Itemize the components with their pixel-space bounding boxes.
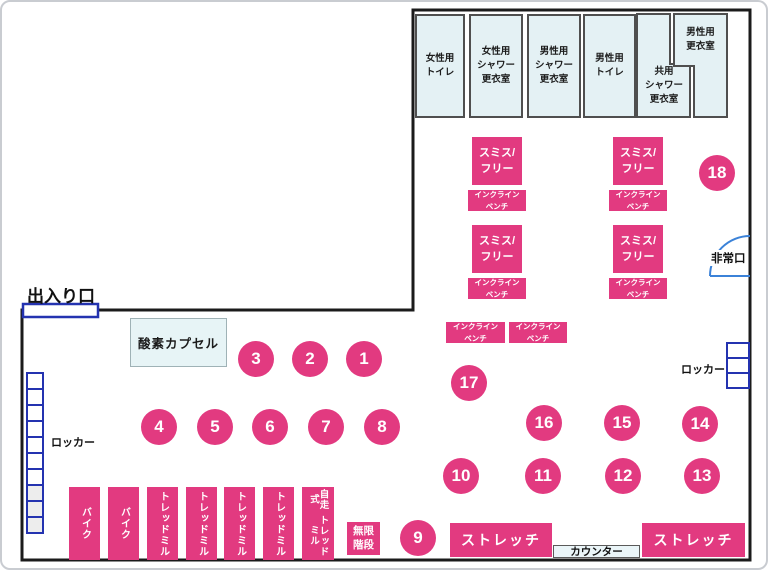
- room-mens-toilet: 男性用 トイレ: [583, 14, 636, 118]
- station-14: 14: [682, 406, 718, 442]
- oxygen-capsule-room: 酸素カプセル: [130, 318, 227, 367]
- station-10: 10: [443, 458, 479, 494]
- counter: カウンター: [553, 545, 640, 558]
- bike-1: バイク: [69, 487, 100, 560]
- locker-label-left: ロッカー: [51, 434, 95, 450]
- smith-free-machine-1: スミス/ フリー: [472, 137, 522, 185]
- room-shared-shower-changing-label: 共用 シャワー 更衣室: [636, 60, 692, 112]
- incline-bench-2: インクライン ベンチ: [609, 190, 667, 211]
- room-mens-changing-label: 男性用 更衣室: [674, 18, 727, 62]
- smith-free-machine-3: スミス/ フリー: [472, 225, 522, 273]
- station-18: 18: [699, 155, 735, 191]
- treadmill-4: トレッドミル: [263, 487, 294, 560]
- station-4: 4: [141, 409, 177, 445]
- locker-label-right: ロッカー: [681, 361, 725, 377]
- infinite-stairs: 無限 階段: [347, 522, 380, 555]
- incline-bench-3: インクライン ベンチ: [468, 278, 526, 299]
- self-propelled-treadmill: 自走式 トレッドミル: [302, 487, 334, 560]
- locker-cell: [26, 516, 44, 534]
- station-16: 16: [526, 405, 562, 441]
- station-7: 7: [308, 409, 344, 445]
- entrance-label: 出入り口: [27, 282, 95, 307]
- emergency-exit-label: 非常口: [710, 250, 747, 266]
- locker-cell: [726, 372, 750, 389]
- room-mens-shower-changing: 男性用 シャワー 更衣室: [527, 14, 581, 118]
- station-15: 15: [604, 405, 640, 441]
- station-1: 1: [346, 341, 382, 377]
- gym-floor-plan: 女性用 トイレ 女性用 シャワー 更衣室 男性用 シャワー 更衣室 男性用 トイ…: [0, 0, 768, 570]
- station-2: 2: [292, 341, 328, 377]
- bike-2: バイク: [108, 487, 139, 560]
- station-11: 11: [525, 458, 561, 494]
- treadmill-3: トレッドミル: [224, 487, 255, 560]
- locker-bank-right: [726, 342, 750, 389]
- station-5: 5: [197, 409, 233, 445]
- locker-bank-left: [26, 372, 44, 534]
- incline-bench-1: インクライン ベンチ: [468, 190, 526, 211]
- smith-free-machine-4: スミス/ フリー: [613, 225, 663, 273]
- stretch-area-right: ストレッチ: [642, 523, 745, 557]
- station-13: 13: [684, 458, 720, 494]
- station-17: 17: [451, 365, 487, 401]
- treadmill-2: トレッドミル: [186, 487, 217, 560]
- room-womens-toilet: 女性用 トイレ: [415, 14, 465, 118]
- self-propelled-treadmill-line2: トレッドミル: [309, 511, 328, 560]
- treadmill-1: トレッドミル: [147, 487, 178, 560]
- incline-bench-6: インクライン ベンチ: [509, 322, 567, 343]
- station-12: 12: [605, 458, 641, 494]
- stretch-area-left: ストレッチ: [450, 523, 552, 557]
- station-6: 6: [252, 409, 288, 445]
- incline-bench-5: インクライン ベンチ: [446, 322, 505, 343]
- smith-free-machine-2: スミス/ フリー: [613, 137, 663, 185]
- self-propelled-treadmill-line1: 自走式: [309, 487, 328, 511]
- station-3: 3: [238, 341, 274, 377]
- incline-bench-4: インクライン ベンチ: [609, 278, 667, 299]
- station-9: 9: [400, 520, 436, 556]
- station-8: 8: [364, 409, 400, 445]
- room-womens-shower-changing: 女性用 シャワー 更衣室: [469, 14, 523, 118]
